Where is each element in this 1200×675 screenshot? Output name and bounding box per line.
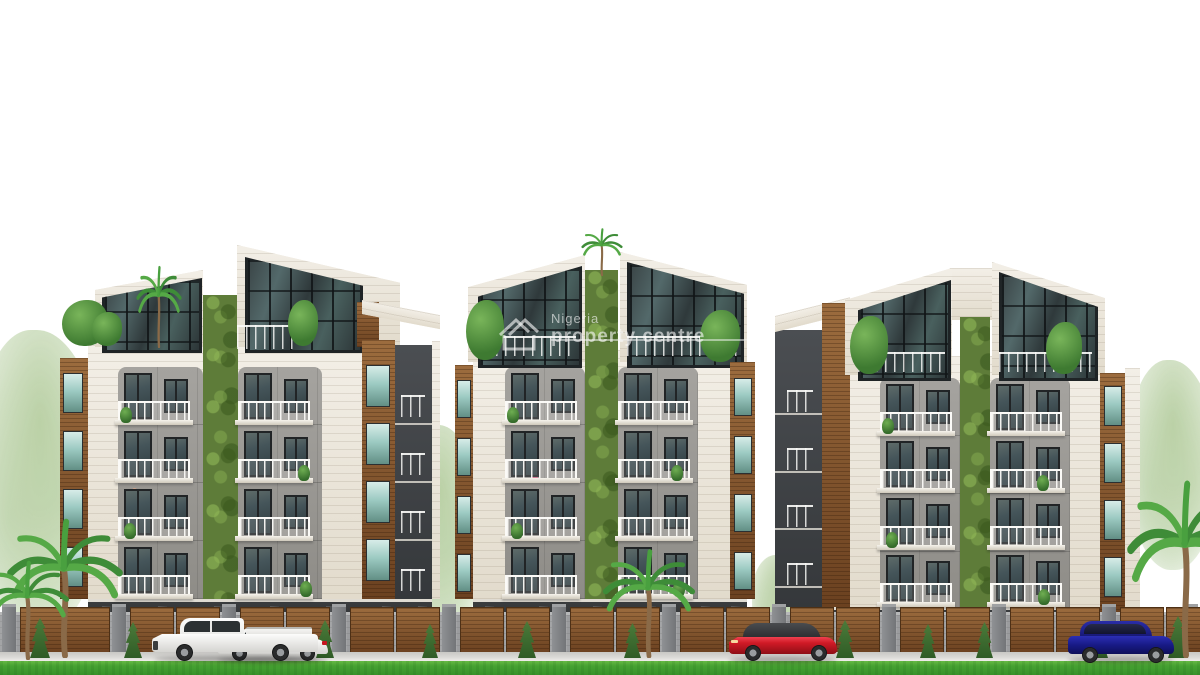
watermark-text: Nigeria property centre — [551, 312, 705, 347]
balcony-plant — [1037, 475, 1049, 491]
balcony — [118, 575, 190, 599]
balcony — [990, 412, 1062, 436]
balcony — [238, 517, 310, 541]
balcony-railing — [880, 469, 952, 488]
fence-pillar — [552, 604, 566, 656]
side-window — [457, 438, 471, 476]
floor-slab-line — [775, 413, 822, 415]
balcony-plant — [298, 465, 310, 481]
rooftop-plant — [850, 316, 888, 374]
wing-balcony — [787, 448, 813, 470]
balcony-railing — [618, 401, 690, 420]
balcony-slab — [235, 420, 313, 425]
balcony-plant — [507, 407, 519, 423]
balcony-slab — [615, 420, 693, 425]
balcony — [618, 401, 690, 425]
side-window — [457, 380, 471, 418]
house-outline-icon — [496, 312, 542, 354]
balcony-slab — [615, 536, 693, 541]
floor-slab-line — [775, 528, 822, 530]
balcony — [238, 401, 310, 425]
balcony-slab — [502, 594, 580, 599]
balcony-railing — [238, 401, 310, 420]
floor-slab-line — [395, 423, 432, 425]
wing-balcony — [787, 390, 813, 412]
right-building-green-wall — [960, 317, 990, 607]
watermark: Nigeria property centre — [496, 312, 776, 362]
side-window — [734, 552, 752, 590]
balcony — [990, 526, 1062, 550]
floor-slab-line — [775, 586, 822, 588]
rooftop-palm-tree — [581, 226, 623, 276]
side-window — [457, 554, 471, 592]
fence-wood-panel — [1010, 607, 1054, 654]
balcony-slab — [115, 594, 193, 599]
balcony-railing — [880, 583, 952, 602]
wing-balcony — [401, 511, 425, 533]
balcony-plant — [300, 581, 312, 597]
balcony-slab — [877, 488, 955, 493]
palm-tree — [1126, 472, 1200, 658]
wing-balcony — [787, 563, 813, 585]
balcony-slab — [987, 488, 1065, 493]
balcony-plant — [671, 465, 683, 481]
wing-balcony — [401, 569, 425, 591]
left-building-green-wall — [203, 295, 238, 599]
balcony-railing — [118, 575, 190, 594]
side-window — [63, 431, 83, 471]
balcony-plant — [124, 523, 136, 539]
side-window — [734, 378, 752, 416]
balcony-plant — [886, 532, 898, 548]
rooftop-plant — [1046, 322, 1082, 374]
balcony-railing — [618, 517, 690, 536]
car-headlight — [731, 640, 738, 643]
balcony — [880, 469, 952, 493]
fence-wood-panel — [350, 607, 394, 654]
floor-slab-line — [395, 539, 432, 541]
side-window — [366, 423, 390, 465]
car-wheel — [745, 645, 761, 661]
balcony-railing — [505, 459, 577, 478]
balcony — [990, 469, 1062, 493]
architectural-render-scene: Nigeria property centre — [0, 0, 1200, 675]
floor-slab-line — [395, 481, 432, 483]
truck-wheel — [176, 644, 193, 661]
balcony — [618, 517, 690, 541]
fence-pillar — [332, 604, 346, 656]
rooftop-plant — [92, 312, 122, 346]
balcony — [505, 459, 577, 483]
balcony-railing — [505, 575, 577, 594]
side-window — [1104, 557, 1122, 597]
wing-balcony — [401, 453, 425, 475]
balcony — [118, 459, 190, 483]
balcony-railing — [990, 583, 1062, 602]
balcony-railing — [990, 469, 1062, 488]
watermark-line2: property centre — [551, 326, 705, 347]
car-taillight — [322, 641, 327, 645]
car-wheel — [1082, 647, 1098, 663]
palm-tree — [602, 544, 696, 658]
fence-pillar — [992, 604, 1006, 656]
fence-wood-panel — [460, 607, 504, 654]
watermark-underline — [551, 339, 747, 341]
truck-grille — [153, 641, 158, 650]
side-window — [1104, 500, 1122, 540]
truck-wheel — [272, 644, 289, 661]
side-window — [1104, 443, 1122, 483]
penthouse-gable-wall — [950, 268, 992, 320]
white-pickup-truck — [150, 618, 320, 664]
side-window — [734, 436, 752, 474]
balcony-plant — [1038, 589, 1050, 605]
fence-pillar — [882, 604, 896, 656]
wing-balcony — [787, 505, 813, 527]
fence-wood-panel — [900, 607, 944, 654]
balcony-plant — [882, 418, 894, 434]
side-window — [366, 481, 390, 523]
side-window — [366, 365, 390, 407]
side-window — [1104, 386, 1122, 426]
floor-slab-line — [775, 471, 822, 473]
balcony — [505, 575, 577, 599]
side-window — [734, 494, 752, 532]
side-window — [366, 539, 390, 581]
balcony-railing — [990, 412, 1062, 431]
balcony-slab — [502, 478, 580, 483]
fence-pillar — [442, 604, 456, 656]
wing-balcony — [401, 395, 425, 417]
balcony-plant — [120, 407, 132, 423]
palm-tree — [0, 556, 70, 660]
balcony-plant — [511, 523, 523, 539]
balcony-slab — [235, 536, 313, 541]
truck-window — [184, 621, 240, 632]
right-building — [775, 258, 1145, 652]
balcony-railing — [118, 459, 190, 478]
rooftop-plant — [288, 300, 318, 346]
balcony-slab — [115, 478, 193, 483]
side-window — [63, 373, 83, 413]
car-wheel — [811, 645, 827, 661]
balcony-railing — [990, 526, 1062, 545]
balcony-slab — [987, 545, 1065, 550]
wing-white-edge — [432, 341, 440, 599]
red-suv-car — [727, 623, 839, 663]
rooftop-palm-tree — [136, 262, 182, 348]
watermark-line1: Nigeria — [551, 312, 705, 326]
side-window — [457, 496, 471, 534]
balcony-slab — [987, 431, 1065, 436]
balcony-railing — [238, 517, 310, 536]
